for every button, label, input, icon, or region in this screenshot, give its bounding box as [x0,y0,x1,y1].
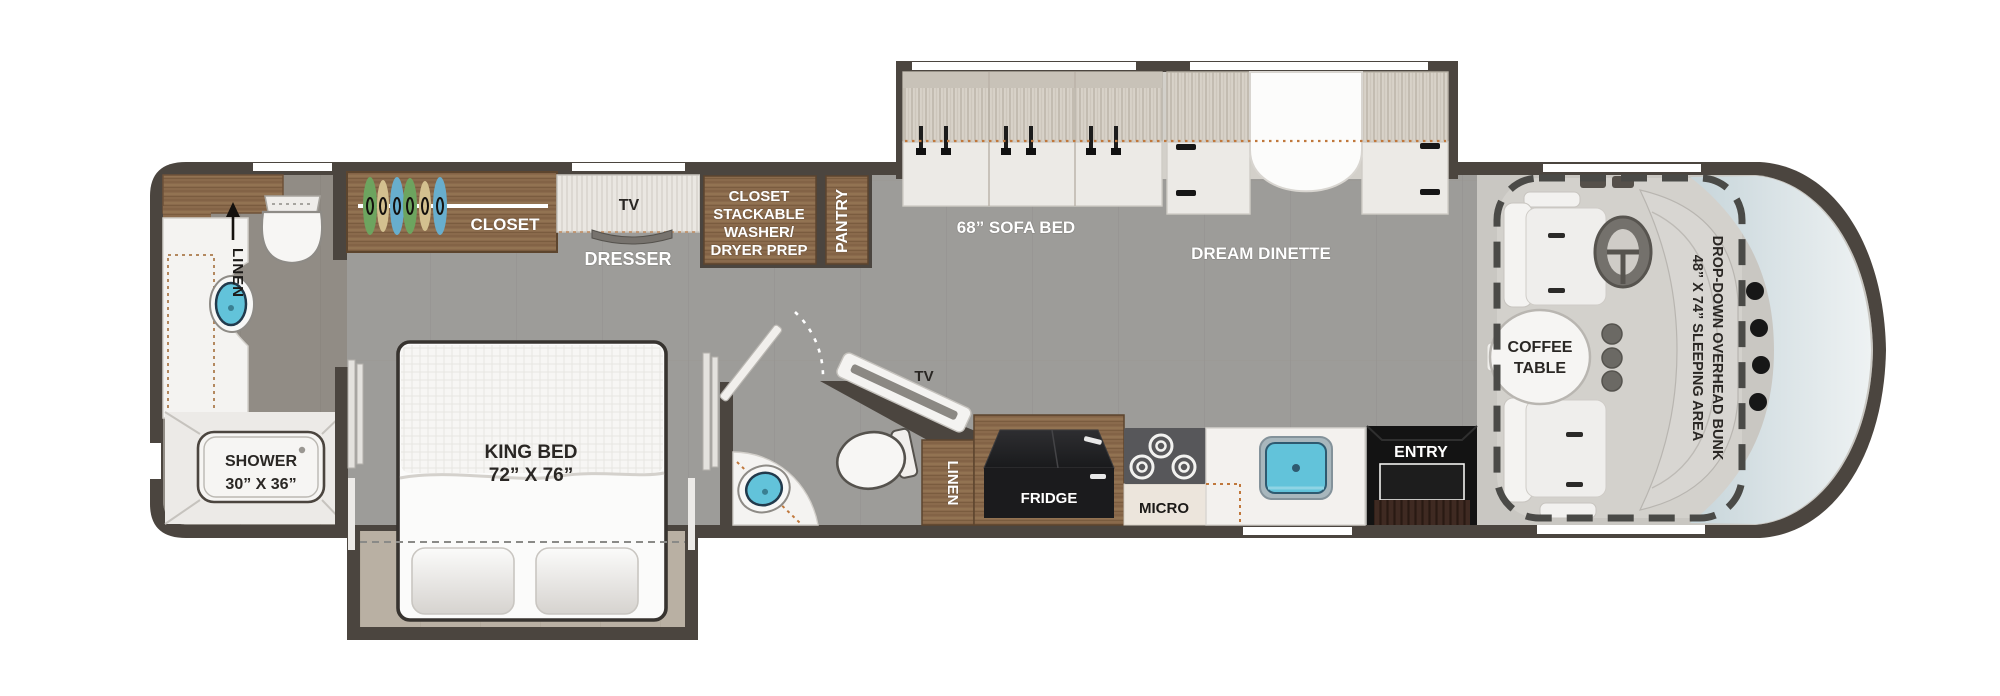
dinette-label: DREAM DINETTE [1191,244,1331,263]
bunk-label-1: DROP-DOWN OVERHEAD BUNK [1709,236,1725,461]
window [1537,525,1705,534]
rear-linen-label: LINEN [229,248,246,298]
shower-label-1: SHOWER [225,453,297,470]
window [572,163,685,171]
console-cupholders-icon [1602,324,1622,391]
fridge-label: FRIDGE [1021,490,1078,507]
entry-step [1380,464,1464,500]
shower-label-2: 30” X 36” [225,476,296,493]
window [1243,527,1352,535]
rear-bath-pocket-door [348,360,355,468]
front-cab: COFFEE TABLE DROP-DOWN OVERHEAD BUNK 48”… [1477,175,1873,525]
floorplan-svg: COFFEE TABLE DROP-DOWN OVERHEAD BUNK 48”… [0,0,2000,696]
rear-bath: LINEN SHOWER 30” X 36” [163,175,363,527]
bed-slide-window [348,478,355,550]
mid-bath-pocket-door [703,353,710,470]
wall-bath-bedroom [335,367,348,527]
driver-seat [1504,192,1606,307]
floorplan-canvas: COFFEE TABLE DROP-DOWN OVERHEAD BUNK 48”… [0,0,2000,696]
closet-label: CLOSET [471,215,541,234]
mid-tv-label: TV [914,368,933,385]
fridge: FRIDGE [974,415,1124,525]
wardrobe-closet: CLOSET [347,172,557,252]
laundry-label-3: WASHER/ [724,224,795,241]
laundry-pantry: CLOSET STACKABLE WASHER/ DRYER PREP PANT… [700,172,872,268]
mid-bath-wall [720,382,733,525]
steering-wheel-icon [1595,217,1651,287]
micro-label: MICRO [1139,500,1189,517]
shower-drain-icon [299,447,305,453]
bed-slide-window [688,478,695,550]
laundry-label-1: CLOSET [729,188,790,205]
window [150,443,161,479]
kitchen-linen-label: LINEN [944,461,961,506]
sofa-label: 68” SOFA BED [957,218,1075,237]
pillow-icon [536,548,638,614]
slide-window [1190,62,1428,70]
rear-toilet-icon [262,196,322,263]
fridge-handle-icon [1090,474,1106,479]
coffee-table [1490,310,1590,404]
sofa-bed [903,72,1162,206]
laundry-label-4: DRYER PREP [711,242,808,259]
bunk-label-2: 48” X 74” SLEEPING AREA [1689,255,1705,442]
laundry-label-2: STACKABLE [713,206,804,223]
dresser-label: DRESSER [584,249,671,269]
window [1543,164,1701,172]
kitchen-sink-icon [1260,437,1332,499]
dinette-table [1250,72,1362,191]
shower: SHOWER 30” X 36” [165,412,345,524]
entry-lower-step [1374,500,1470,525]
slide-window [912,62,1136,70]
king-bed-slideout: KING BED 72” X 76” [347,342,698,640]
pantry-label: PANTRY [834,189,851,253]
coffee-table-label-2: TABLE [1514,360,1566,377]
kitchen: LINEN FRIDGE MICRO [922,415,1477,525]
king-bed-label-1: KING BED [485,442,578,463]
entry-label: ENTRY [1394,444,1448,461]
king-bed-label-2: 72” X 76” [489,465,574,486]
mid-bath-pocket-door [712,357,718,467]
coffee-table-label-1: COFFEE [1508,339,1573,356]
rear-overhead-cabinet-step [163,206,211,218]
pillow-icon [412,548,514,614]
rear-bath-pocket-door [357,364,363,464]
cooktop-micro: MICRO [1124,428,1206,525]
counter-sink [1206,428,1365,525]
window [253,163,332,171]
dresser-tv-label: TV [619,197,640,214]
wall-bath-closet [333,175,347,260]
entry: ENTRY [1367,426,1477,525]
